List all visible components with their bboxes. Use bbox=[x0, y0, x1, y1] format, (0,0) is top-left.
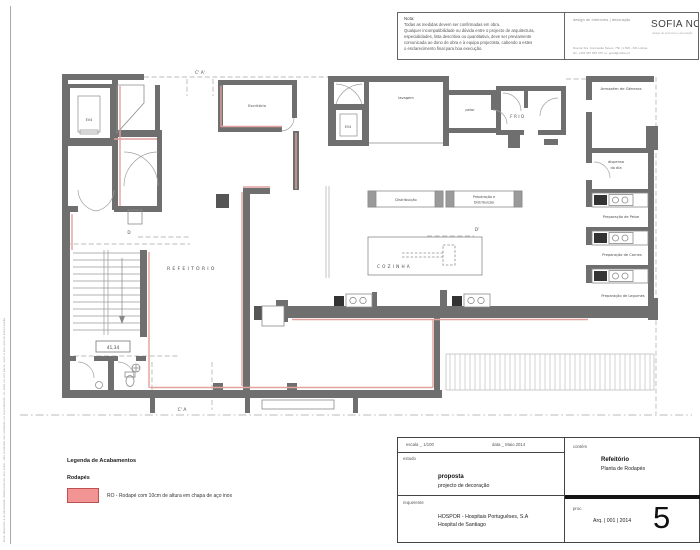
stairs bbox=[73, 250, 140, 335]
brand-cell: design de interiores | decoração SOFIA N… bbox=[564, 13, 698, 59]
note-box: Nota: Todas as medidas devem ser confirm… bbox=[397, 12, 699, 60]
drawing-sheet: Este desenho é propriedade intelectual d… bbox=[0, 0, 700, 550]
process-label: proc. bbox=[573, 506, 583, 511]
walls bbox=[62, 74, 658, 413]
note-line: o esclarecimento final para boa execução… bbox=[404, 46, 560, 52]
sheet-number: 5 bbox=[653, 500, 670, 536]
study-cell: estudo proposta projecto de decoração bbox=[398, 452, 564, 496]
label-frio: FRIO bbox=[510, 114, 525, 119]
client-label: requerente bbox=[403, 500, 424, 505]
title-block-right: contém Refeitório Planta de Rodapés proc… bbox=[564, 438, 700, 542]
process-value: Arq. | 001 | 2014 bbox=[593, 518, 631, 524]
drawing-title: Refeitório bbox=[601, 457, 629, 463]
brand-services: design de interiores | decoração bbox=[573, 18, 630, 22]
study-label: estudo bbox=[403, 456, 416, 461]
label-lavagem: lavagem bbox=[398, 96, 414, 100]
label-prep-dist-1: Preparação e bbox=[473, 195, 495, 199]
date-value: data _ Maio 2014 bbox=[492, 442, 525, 447]
label-dispensa-2: do dia bbox=[610, 166, 621, 170]
label-pelar: pelar bbox=[465, 108, 475, 112]
brand-address-line: Rua de Sra. Conceição Neves, 75b | 1.500… bbox=[573, 46, 647, 50]
title-block-divider-bar bbox=[565, 495, 700, 499]
legend-swatch bbox=[67, 488, 99, 503]
label-distribuicao: Distribuição bbox=[395, 198, 416, 202]
note-text: Nota: Todas as medidas devem ser confirm… bbox=[398, 13, 564, 59]
label-ev4-a: EV4 bbox=[86, 118, 94, 122]
brand-address: Rua de Sra. Conceição Neves, 75b | 1.500… bbox=[573, 46, 647, 55]
scale-date-row: escala _ 1/100 data _ Maio 2014 bbox=[398, 438, 564, 453]
section-marker-top: C' A' bbox=[195, 70, 205, 76]
title-block: escala _ 1/100 data _ Maio 2014 estudo p… bbox=[397, 437, 700, 543]
label-armazem: Armazém de Géneros bbox=[600, 86, 641, 91]
label-dispensa-1: dispensa bbox=[608, 160, 624, 164]
label-prep-legumes: Preparação de Legumes bbox=[601, 294, 644, 298]
study-title: proposta bbox=[438, 474, 464, 480]
client-line-2: Hospital de Santiago bbox=[438, 522, 486, 528]
brand-logo: SOFIA NO bbox=[651, 19, 698, 30]
legend-item: RO - Rodapé com 10cm de altura em chapa … bbox=[67, 488, 367, 503]
brand-contact-line: tlm. +351 967 815 975 | e. geral@sofian.… bbox=[573, 51, 647, 55]
label-prep-dist-2: Distribuição bbox=[474, 201, 494, 205]
finishes-legend: Legenda de Acabamentos Rodapés RO - Roda… bbox=[67, 458, 367, 503]
label-escritorio: Escritório bbox=[248, 103, 267, 108]
label-level: 41,34 bbox=[107, 345, 120, 351]
section-marker-bottom: C' A bbox=[178, 407, 187, 413]
legend-item-label: RO - Rodapé com 10cm de altura em chapa … bbox=[107, 493, 232, 499]
legend-group-rodapes: Rodapés bbox=[67, 475, 367, 481]
drawing-subtitle: Planta de Rodapés bbox=[601, 466, 645, 472]
section-marker-d-right: D' bbox=[475, 227, 479, 232]
label-prep-carnes: Preparação de Carnes bbox=[602, 253, 642, 257]
label-prep-peixe: Preparação de Peixe bbox=[603, 215, 640, 219]
scale-value: escala _ 1/100 bbox=[406, 442, 434, 447]
label-cozinha: COZINHA bbox=[377, 264, 412, 269]
label-refeitorio: REFEITÓRIO bbox=[167, 265, 217, 272]
legend-title: Legenda de Acabamentos bbox=[67, 458, 367, 464]
client-line-1: HOSPOR - Hospitais Portuguêses, S.A bbox=[438, 514, 528, 520]
contains-label: contém bbox=[573, 444, 587, 449]
title-block-left: escala _ 1/100 data _ Maio 2014 estudo p… bbox=[398, 438, 564, 542]
exterior-hatch bbox=[446, 354, 654, 390]
study-subtitle: projecto de decoração bbox=[438, 483, 489, 489]
brand-tagline: design de interiores e decoração bbox=[652, 31, 693, 35]
label-ev4-b: EV4 bbox=[345, 125, 351, 129]
section-marker-d-left: D bbox=[127, 230, 130, 235]
client-cell: requerente HOSPOR - Hospitais Portuguêse… bbox=[398, 495, 564, 542]
